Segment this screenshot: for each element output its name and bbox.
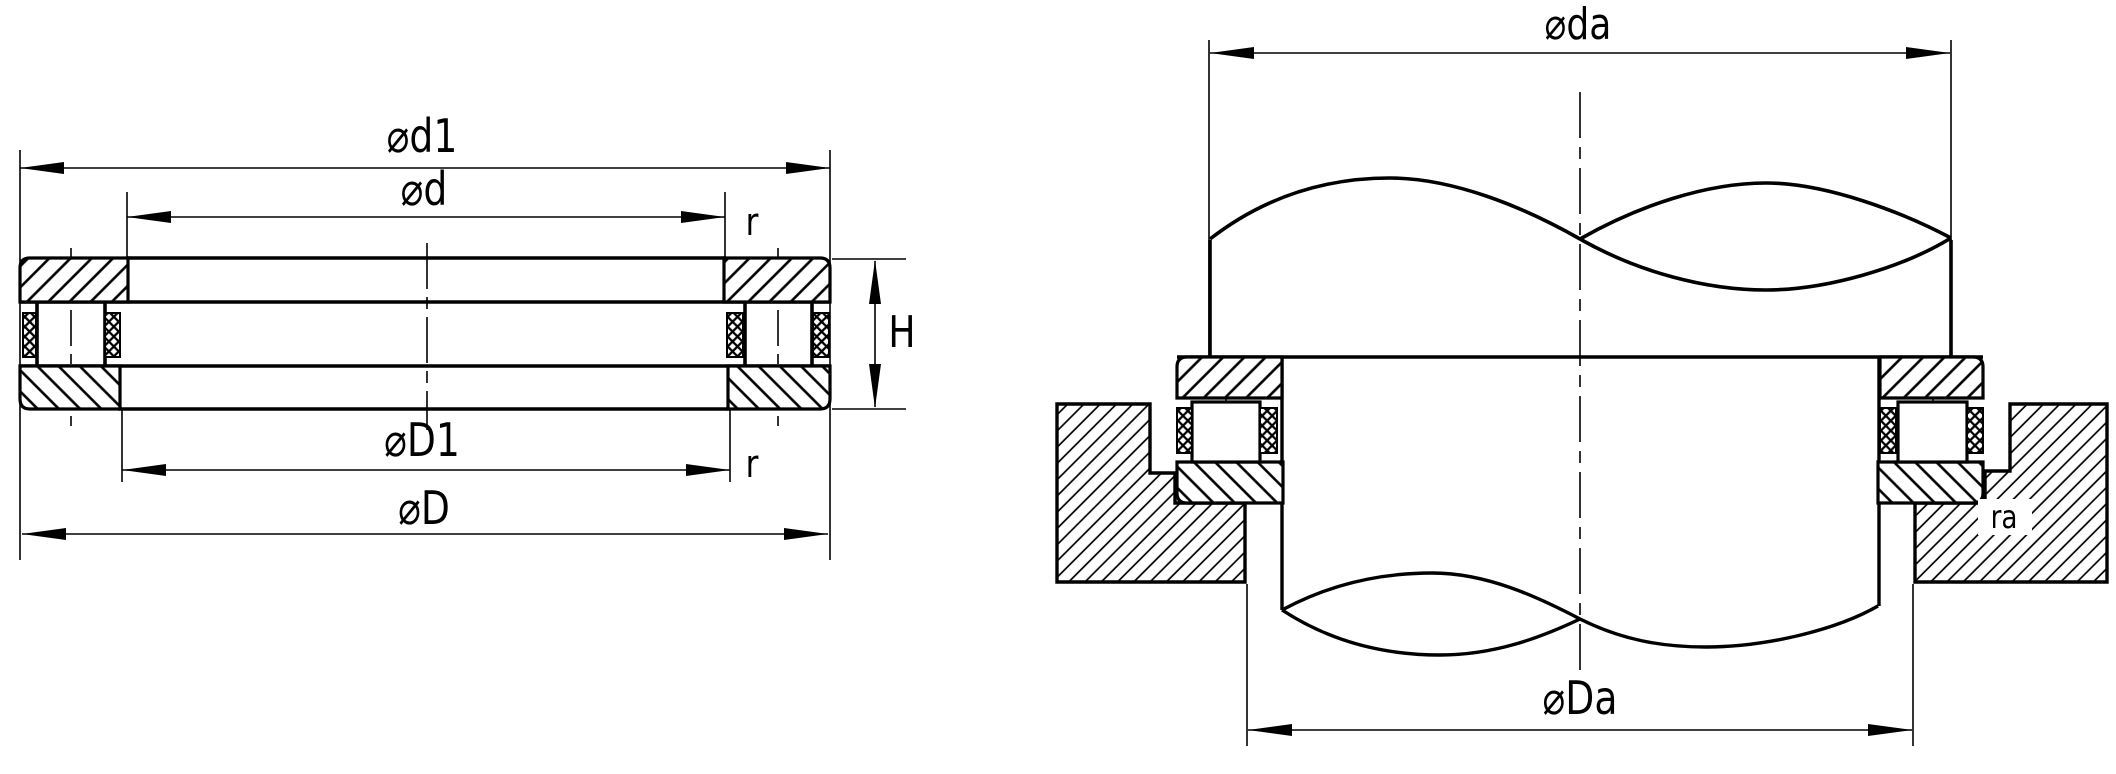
shaft-break-curve-top-2 [1580, 183, 1951, 239]
roller-edges-left-view [37, 302, 812, 366]
dim-label-ra: ra [1987, 501, 2020, 533]
shaft-washer-section-left [20, 258, 128, 302]
right-view-mounting [1057, 40, 2107, 746]
arrowhead-right-icon [1906, 47, 1950, 59]
dimension-phi-Da [1248, 724, 1912, 736]
arrowhead-down-icon [869, 364, 881, 408]
dim-label-D1: ⌀D1 [384, 417, 460, 463]
dim-label-d1: ⌀d1 [387, 113, 458, 159]
extension-lines-left-view [20, 150, 906, 560]
engineering-drawing: ⌀d1 ⌀d ⌀D1 ⌀D H r r ⌀da ⌀Da ra [0, 0, 2116, 774]
left-view-cross-section [20, 150, 906, 560]
shaft-break-curve-bottom-2 [1282, 610, 1580, 655]
arrowhead-right-icon [786, 162, 830, 174]
dim-label-H: H [888, 311, 915, 355]
dimension-H [869, 260, 881, 408]
cage-sections-left-view [23, 313, 829, 357]
housing-washer-section-left [20, 366, 120, 409]
dim-label-D: ⌀D [398, 485, 450, 531]
drawing-linework [0, 0, 2116, 774]
roller-mounted-left [1192, 402, 1260, 462]
shaft-washer-mounted-left [1177, 357, 1282, 398]
dim-label-r-top: r [746, 203, 759, 241]
shaft-washer-section-right [724, 258, 830, 302]
arrowhead-up-icon [869, 260, 881, 304]
arrowhead-left-icon [127, 211, 171, 223]
arrowhead-left-icon [20, 162, 64, 174]
dim-label-da: ⌀da [1545, 3, 1612, 47]
arrowhead-right-icon [1868, 724, 1912, 736]
housing-washer-section-right [728, 366, 830, 409]
arrowhead-right-icon [686, 464, 730, 476]
dim-label-d: ⌀d [401, 166, 448, 212]
dim-label-r-bottom: r [746, 445, 759, 483]
arrowhead-left-icon [1248, 724, 1292, 736]
arrowhead-left-icon [22, 528, 66, 540]
washer-faces-left-view [20, 258, 830, 409]
housing-washer-mounted-right [1878, 462, 1983, 503]
arrowhead-left-icon [122, 464, 166, 476]
arrowhead-left-icon [1210, 47, 1254, 59]
center-lines-right-view [1226, 92, 1933, 670]
shaft-washer-mounted-right [1880, 357, 1983, 398]
arrowhead-right-icon [784, 528, 828, 540]
housing-washer-mounted-left [1177, 462, 1283, 503]
center-lines-left-view [71, 243, 778, 430]
dim-label-Da: ⌀Da [1543, 675, 1618, 721]
roller-mounted-right [1898, 402, 1967, 462]
arrowhead-right-icon [681, 211, 725, 223]
